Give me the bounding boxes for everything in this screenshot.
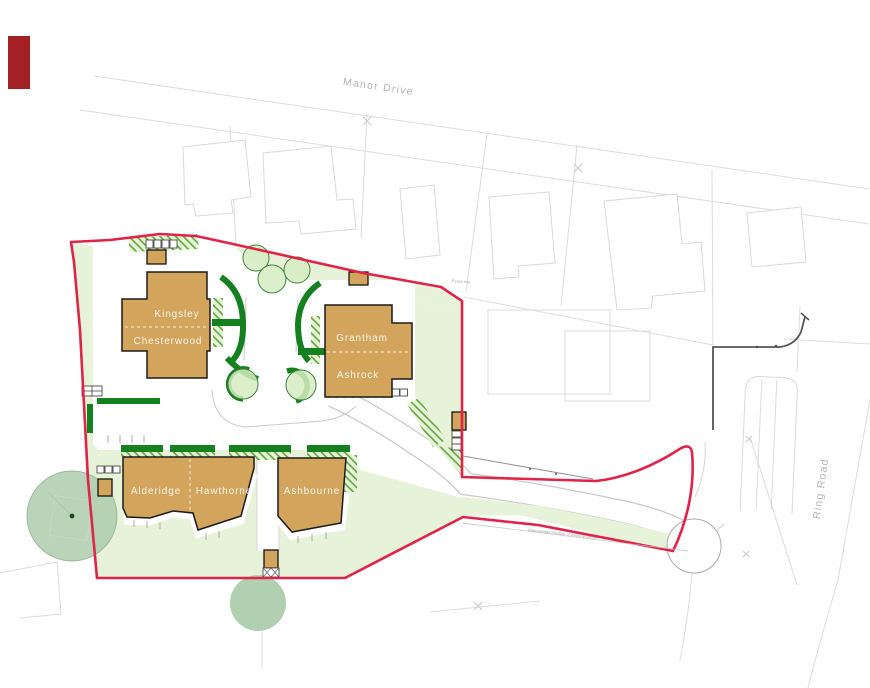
junction-kerb bbox=[695, 442, 705, 497]
ring-road-edge bbox=[808, 388, 870, 688]
existing-house bbox=[489, 192, 555, 279]
label-ashrock: Ashrock bbox=[337, 370, 380, 381]
manor-drive-label: Manor Drive bbox=[342, 76, 414, 98]
existing-house bbox=[747, 207, 806, 267]
existing-house bbox=[400, 185, 440, 259]
label-ashbourne: Ashbourne bbox=[284, 486, 340, 497]
shed bbox=[264, 550, 278, 568]
cycle-stands bbox=[263, 568, 279, 577]
existing-tree-canopy bbox=[230, 575, 286, 631]
existing-plot bbox=[565, 331, 650, 401]
courtyard-tree bbox=[228, 369, 258, 399]
ring-road-label: Ring Road bbox=[811, 457, 831, 519]
label-alderidge: Alderidge bbox=[131, 486, 181, 497]
existing-plot bbox=[488, 310, 610, 394]
ring-road-line bbox=[680, 573, 692, 660]
building-grantham-ashrock bbox=[325, 305, 412, 397]
label-grantham: Grantham bbox=[336, 333, 388, 344]
existing-house bbox=[263, 146, 356, 234]
existing-outbuilding bbox=[0, 562, 61, 618]
label-chesterwood: Chesterwood bbox=[134, 336, 203, 347]
ring-road-parking bbox=[740, 376, 798, 513]
bin-store bbox=[452, 431, 461, 450]
plot-line bbox=[361, 114, 367, 238]
plot-line bbox=[466, 134, 487, 292]
utility-grid-marker bbox=[82, 386, 102, 396]
shed bbox=[452, 412, 466, 430]
plot-line bbox=[561, 145, 577, 306]
plot-line bbox=[712, 170, 713, 345]
boundary-key-swatch bbox=[8, 36, 30, 89]
entry-drive bbox=[246, 296, 298, 362]
shed bbox=[98, 479, 112, 496]
existing-house bbox=[604, 194, 705, 310]
existing-house bbox=[183, 140, 251, 216]
label-kingsley: Kingsley bbox=[155, 309, 200, 320]
shed bbox=[147, 250, 166, 264]
plot-rear-line bbox=[464, 297, 713, 345]
fence-annotation: Fence line bbox=[452, 279, 471, 284]
bin-store bbox=[392, 389, 408, 396]
footpath bbox=[257, 447, 279, 551]
bin-store bbox=[97, 466, 120, 473]
site-plan: Manor Drive Ring Road bbox=[0, 0, 870, 688]
courtyard-tree bbox=[286, 370, 316, 400]
proposed-tree bbox=[258, 265, 286, 293]
plot-line bbox=[430, 601, 540, 612]
label-hawthorne: Hawthorne bbox=[196, 486, 252, 497]
ring-road-layby bbox=[740, 376, 798, 513]
